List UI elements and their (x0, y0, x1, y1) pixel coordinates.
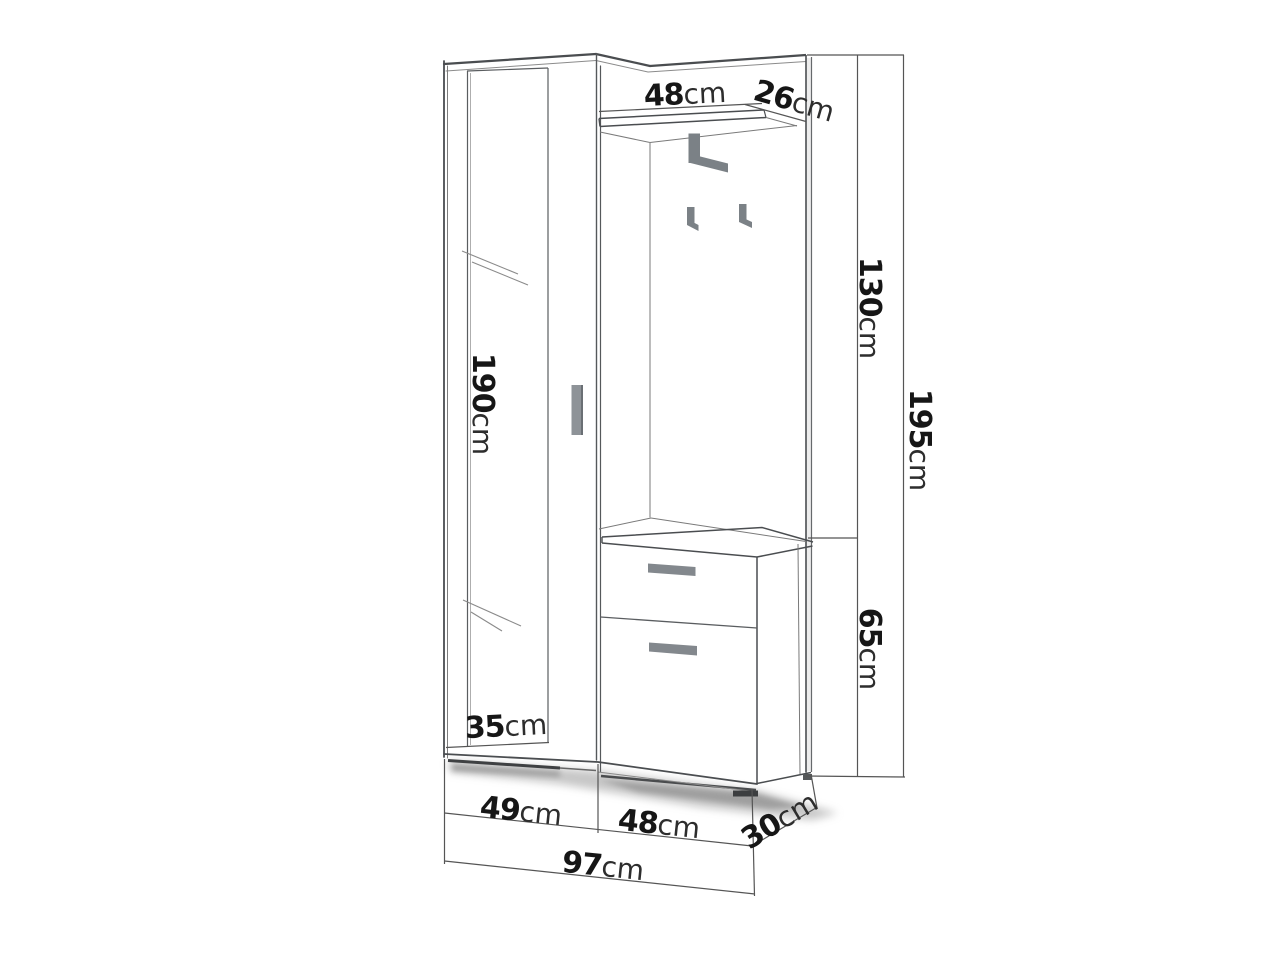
small-hook-left (687, 207, 699, 231)
coat-hooks (687, 134, 752, 232)
furniture-line-drawing (0, 0, 1273, 955)
drawer-handle-top (648, 564, 696, 577)
tick-bottom (806, 776, 905, 777)
shelf (599, 110, 797, 127)
drawer-handle-bottom (649, 643, 697, 656)
wardrobe-door-handle (572, 385, 584, 435)
dim-line-97 (445, 861, 756, 894)
diagram-canvas: 48cm 26cm 130cm 195cm 190cm 65cm 35cm 49… (0, 0, 1273, 955)
dim-line-shelf-width (599, 104, 762, 112)
floor-shadow (448, 761, 838, 820)
dim-line-mirror-width (446, 743, 549, 748)
large-hook (689, 134, 729, 173)
mirror-reflection-lines (462, 251, 528, 631)
shoe-cabinet (601, 528, 814, 784)
small-hook-right (739, 204, 752, 228)
dim-line-shelf-depth (745, 105, 806, 122)
mirror-door (462, 68, 583, 746)
ext-corner (811, 774, 817, 808)
